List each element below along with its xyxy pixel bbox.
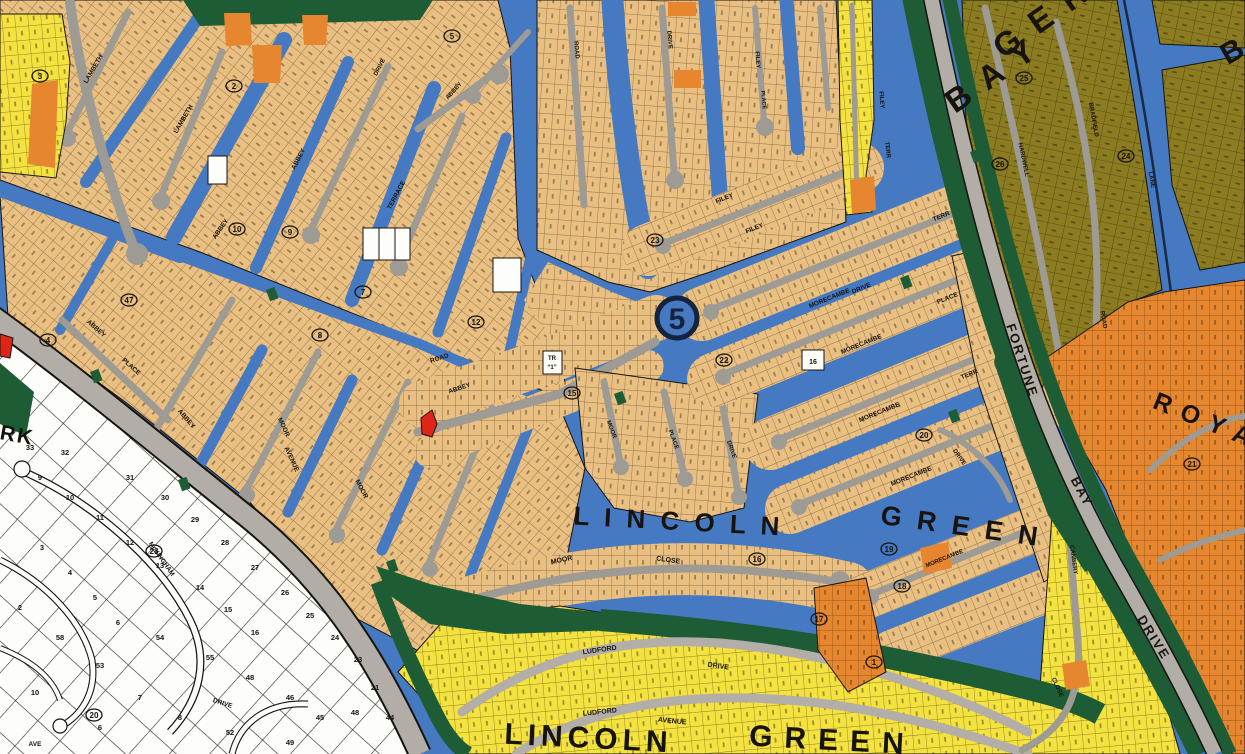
- svg-text:58: 58: [56, 633, 64, 642]
- svg-text:53: 53: [96, 661, 104, 670]
- svg-text:33: 33: [26, 443, 34, 452]
- svg-text:31: 31: [126, 473, 134, 482]
- svg-text:32: 32: [61, 448, 69, 457]
- svg-text:6: 6: [116, 618, 120, 627]
- svg-text:25: 25: [306, 611, 314, 620]
- svg-text:27: 27: [251, 563, 259, 572]
- svg-text:54: 54: [156, 633, 165, 642]
- svg-text:17: 17: [815, 615, 824, 624]
- svg-text:7: 7: [361, 288, 366, 297]
- svg-text:5: 5: [93, 593, 97, 602]
- svg-text:3: 3: [40, 543, 44, 552]
- svg-text:4: 4: [46, 336, 51, 345]
- svg-text:21: 21: [371, 683, 379, 692]
- svg-text:9: 9: [38, 473, 42, 482]
- svg-text:16: 16: [251, 628, 259, 637]
- svg-text:16: 16: [809, 359, 817, 366]
- svg-text:5: 5: [450, 32, 455, 41]
- svg-text:5: 5: [669, 303, 686, 336]
- svg-text:52: 52: [226, 728, 234, 737]
- svg-text:28: 28: [221, 538, 229, 547]
- svg-text:7: 7: [138, 693, 142, 702]
- svg-text:2: 2: [232, 82, 237, 91]
- svg-text:1: 1: [872, 658, 877, 667]
- svg-text:30: 30: [161, 493, 169, 502]
- svg-text:8: 8: [178, 713, 182, 722]
- svg-text:55: 55: [206, 653, 214, 662]
- svg-text:AVE: AVE: [29, 741, 43, 748]
- svg-text:48: 48: [351, 708, 359, 717]
- svg-text:20: 20: [920, 431, 929, 440]
- svg-text:26: 26: [281, 588, 289, 597]
- svg-text:26: 26: [996, 160, 1005, 169]
- svg-text:2: 2: [18, 603, 22, 612]
- svg-text:45: 45: [316, 713, 324, 722]
- svg-text:14: 14: [196, 583, 205, 592]
- svg-text:19: 19: [885, 545, 894, 554]
- svg-text:18: 18: [898, 582, 907, 591]
- svg-text:8: 8: [318, 331, 323, 340]
- svg-text:22: 22: [720, 356, 729, 365]
- svg-text:48: 48: [246, 673, 254, 682]
- svg-text:23: 23: [651, 236, 660, 245]
- svg-text:13: 13: [156, 561, 164, 570]
- svg-text:16: 16: [753, 555, 762, 564]
- svg-text:12: 12: [472, 318, 481, 327]
- svg-text:12: 12: [126, 538, 134, 547]
- svg-text:44: 44: [386, 713, 395, 722]
- svg-text:47: 47: [125, 296, 134, 305]
- svg-text:23: 23: [354, 655, 362, 664]
- svg-text:15: 15: [568, 389, 577, 398]
- svg-text:“1”: “1”: [547, 365, 556, 371]
- svg-text:49: 49: [286, 738, 294, 747]
- svg-text:10: 10: [233, 225, 242, 234]
- svg-text:24: 24: [331, 633, 340, 642]
- svg-text:46: 46: [286, 693, 294, 702]
- svg-text:29: 29: [191, 515, 199, 524]
- svg-text:24: 24: [1122, 152, 1131, 161]
- svg-text:6: 6: [98, 723, 102, 732]
- svg-text:15: 15: [224, 605, 232, 614]
- svg-text:10: 10: [31, 688, 39, 697]
- svg-text:9: 9: [288, 228, 293, 237]
- svg-text:TR: TR: [548, 356, 557, 362]
- svg-text:3: 3: [38, 72, 43, 81]
- svg-text:21: 21: [1188, 460, 1197, 469]
- svg-text:10: 10: [66, 493, 74, 502]
- svg-text:20: 20: [90, 711, 99, 720]
- svg-text:11: 11: [96, 513, 104, 522]
